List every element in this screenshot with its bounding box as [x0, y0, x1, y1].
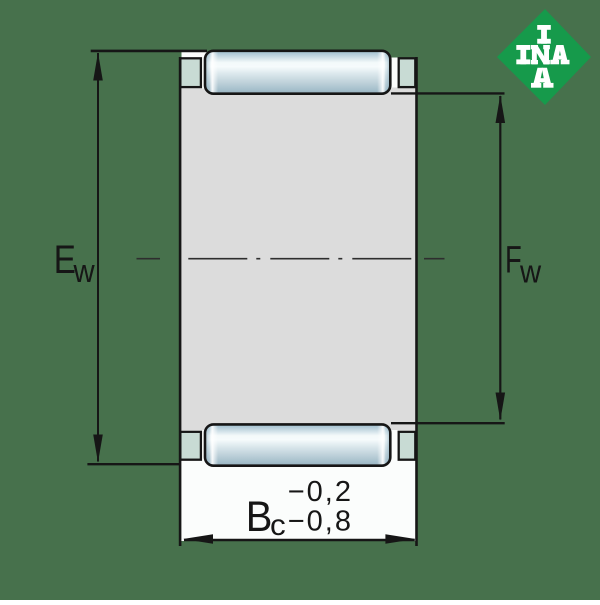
svg-text:w: w	[73, 252, 96, 289]
svg-text:−0,8: −0,8	[288, 506, 353, 538]
svg-text:c: c	[270, 508, 286, 542]
svg-text:−0,2: −0,2	[288, 476, 353, 508]
svg-text:w: w	[519, 253, 542, 290]
svg-text:B: B	[246, 492, 273, 541]
svg-text:E: E	[54, 237, 76, 281]
